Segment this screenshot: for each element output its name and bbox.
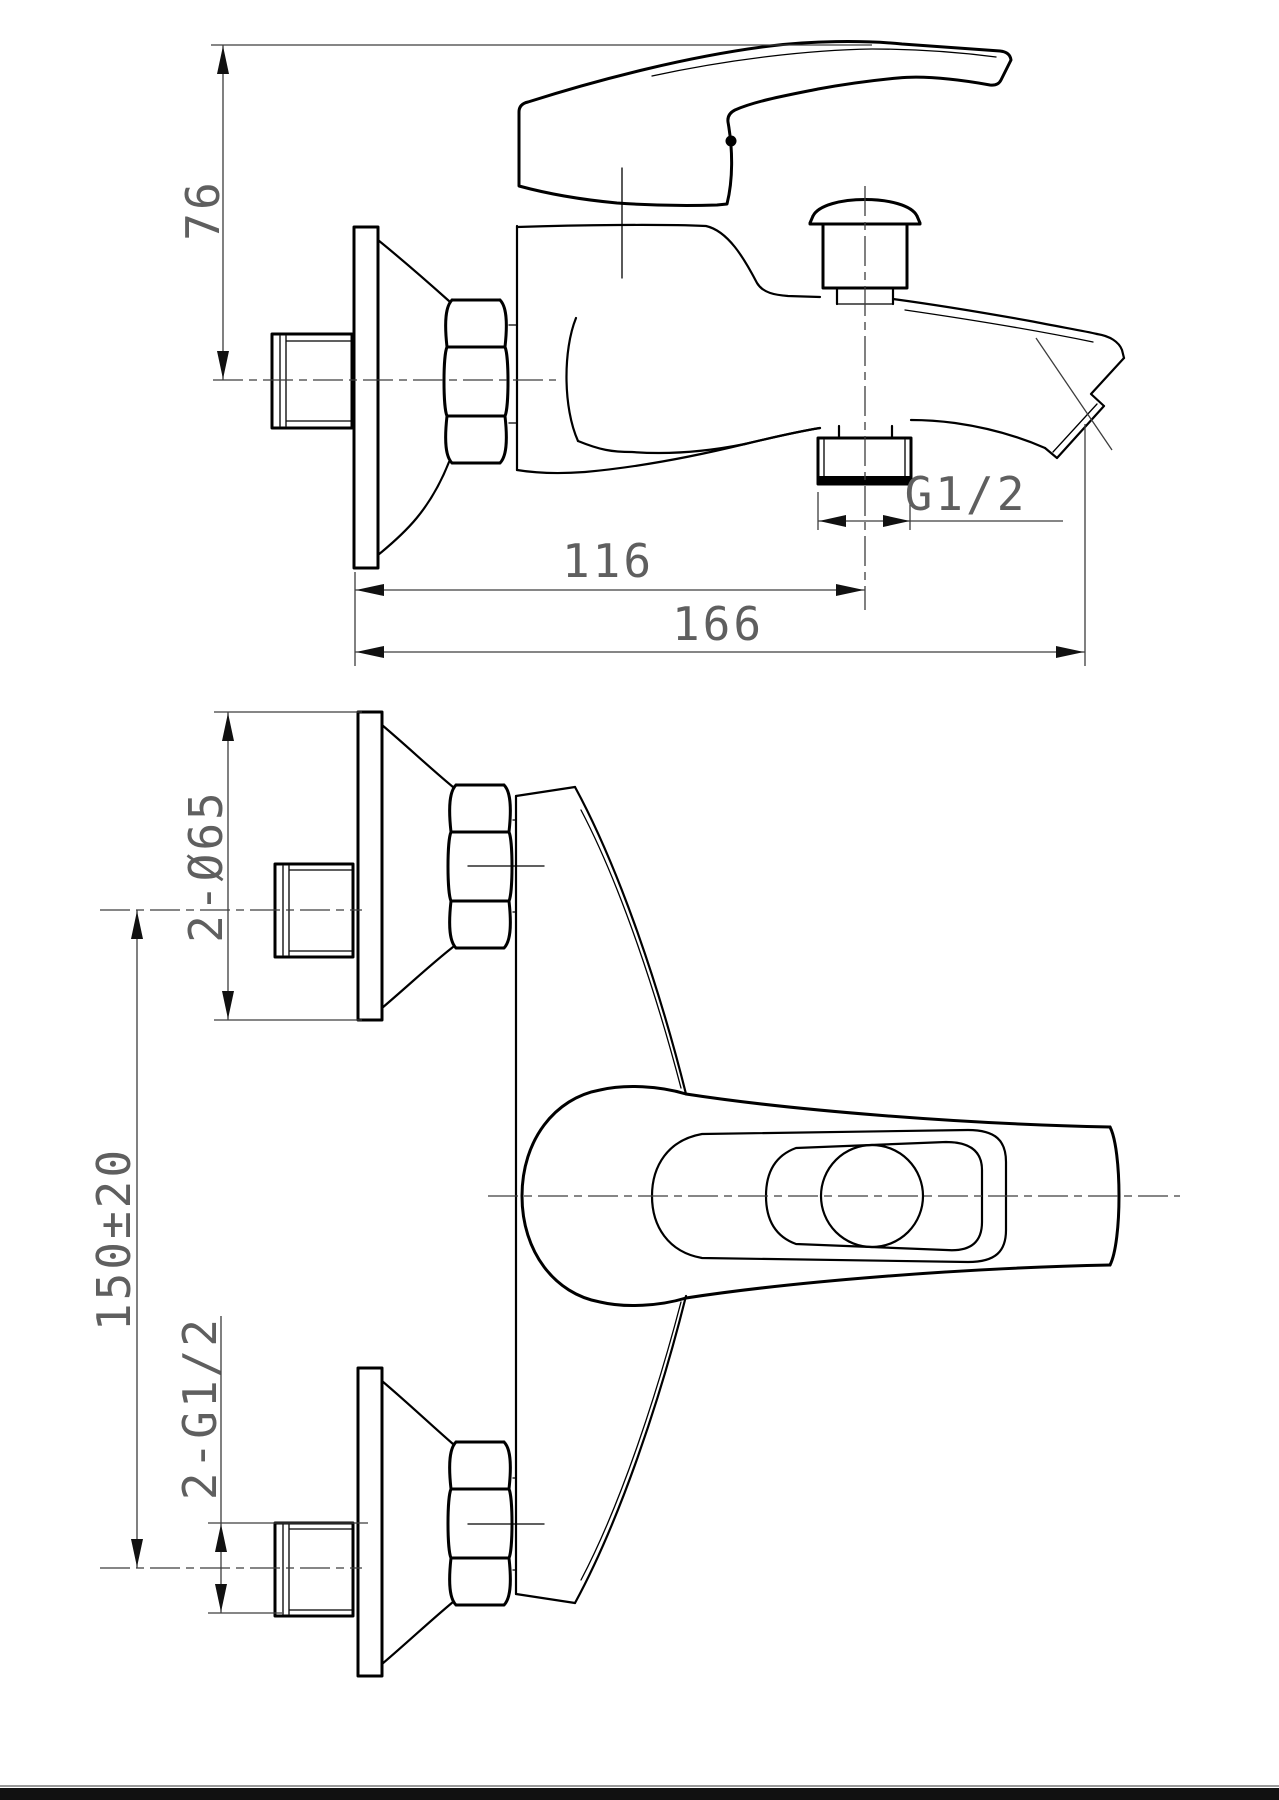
dim-inlet-centres-label: 150±20 bbox=[87, 1147, 141, 1331]
hex-nut bbox=[444, 300, 508, 463]
upper-inlet bbox=[275, 712, 544, 1020]
dim-total-reach: 166 bbox=[355, 424, 1085, 666]
dim-escutcheon-diameter: 2-Ø65 bbox=[179, 712, 362, 1020]
handle-lever bbox=[519, 42, 1011, 206]
dim-escutcheon-diameter-label: 2-Ø65 bbox=[179, 789, 233, 942]
outlet-axis-line bbox=[1036, 338, 1112, 450]
handle-pivot-pin bbox=[726, 136, 737, 147]
dim-shower-outlet-thread-label: G1/2 bbox=[905, 467, 1028, 521]
mixer-body bbox=[517, 168, 820, 473]
dim-inlet-centres: 150±20 bbox=[87, 910, 143, 1568]
body-plan bbox=[516, 787, 686, 1603]
side-view: 76 116 166 G1/2 bbox=[176, 42, 1124, 666]
technical-drawing-canvas: 76 116 166 G1/2 bbox=[0, 0, 1279, 1800]
dim-wall-to-shower-outlet: 116 bbox=[355, 534, 865, 666]
footer-bar bbox=[0, 1786, 1279, 1800]
dim-spout-height-label: 76 bbox=[176, 179, 230, 240]
inlet-nipple bbox=[272, 334, 352, 428]
plan-view: 2-Ø65 150±20 2-G1/2 bbox=[87, 712, 1180, 1676]
dim-inlet-thread-label: 2-G1/2 bbox=[173, 1316, 227, 1500]
dim-spout-height: 76 bbox=[176, 45, 872, 380]
dim-wall-to-shower-outlet-label: 116 bbox=[562, 534, 654, 588]
drawing-sheet: 76 116 166 G1/2 bbox=[0, 0, 1279, 1800]
spout bbox=[745, 299, 1124, 458]
dim-total-reach-label: 166 bbox=[672, 597, 764, 651]
lower-inlet bbox=[275, 1368, 544, 1676]
escutcheon-flange bbox=[354, 227, 449, 568]
